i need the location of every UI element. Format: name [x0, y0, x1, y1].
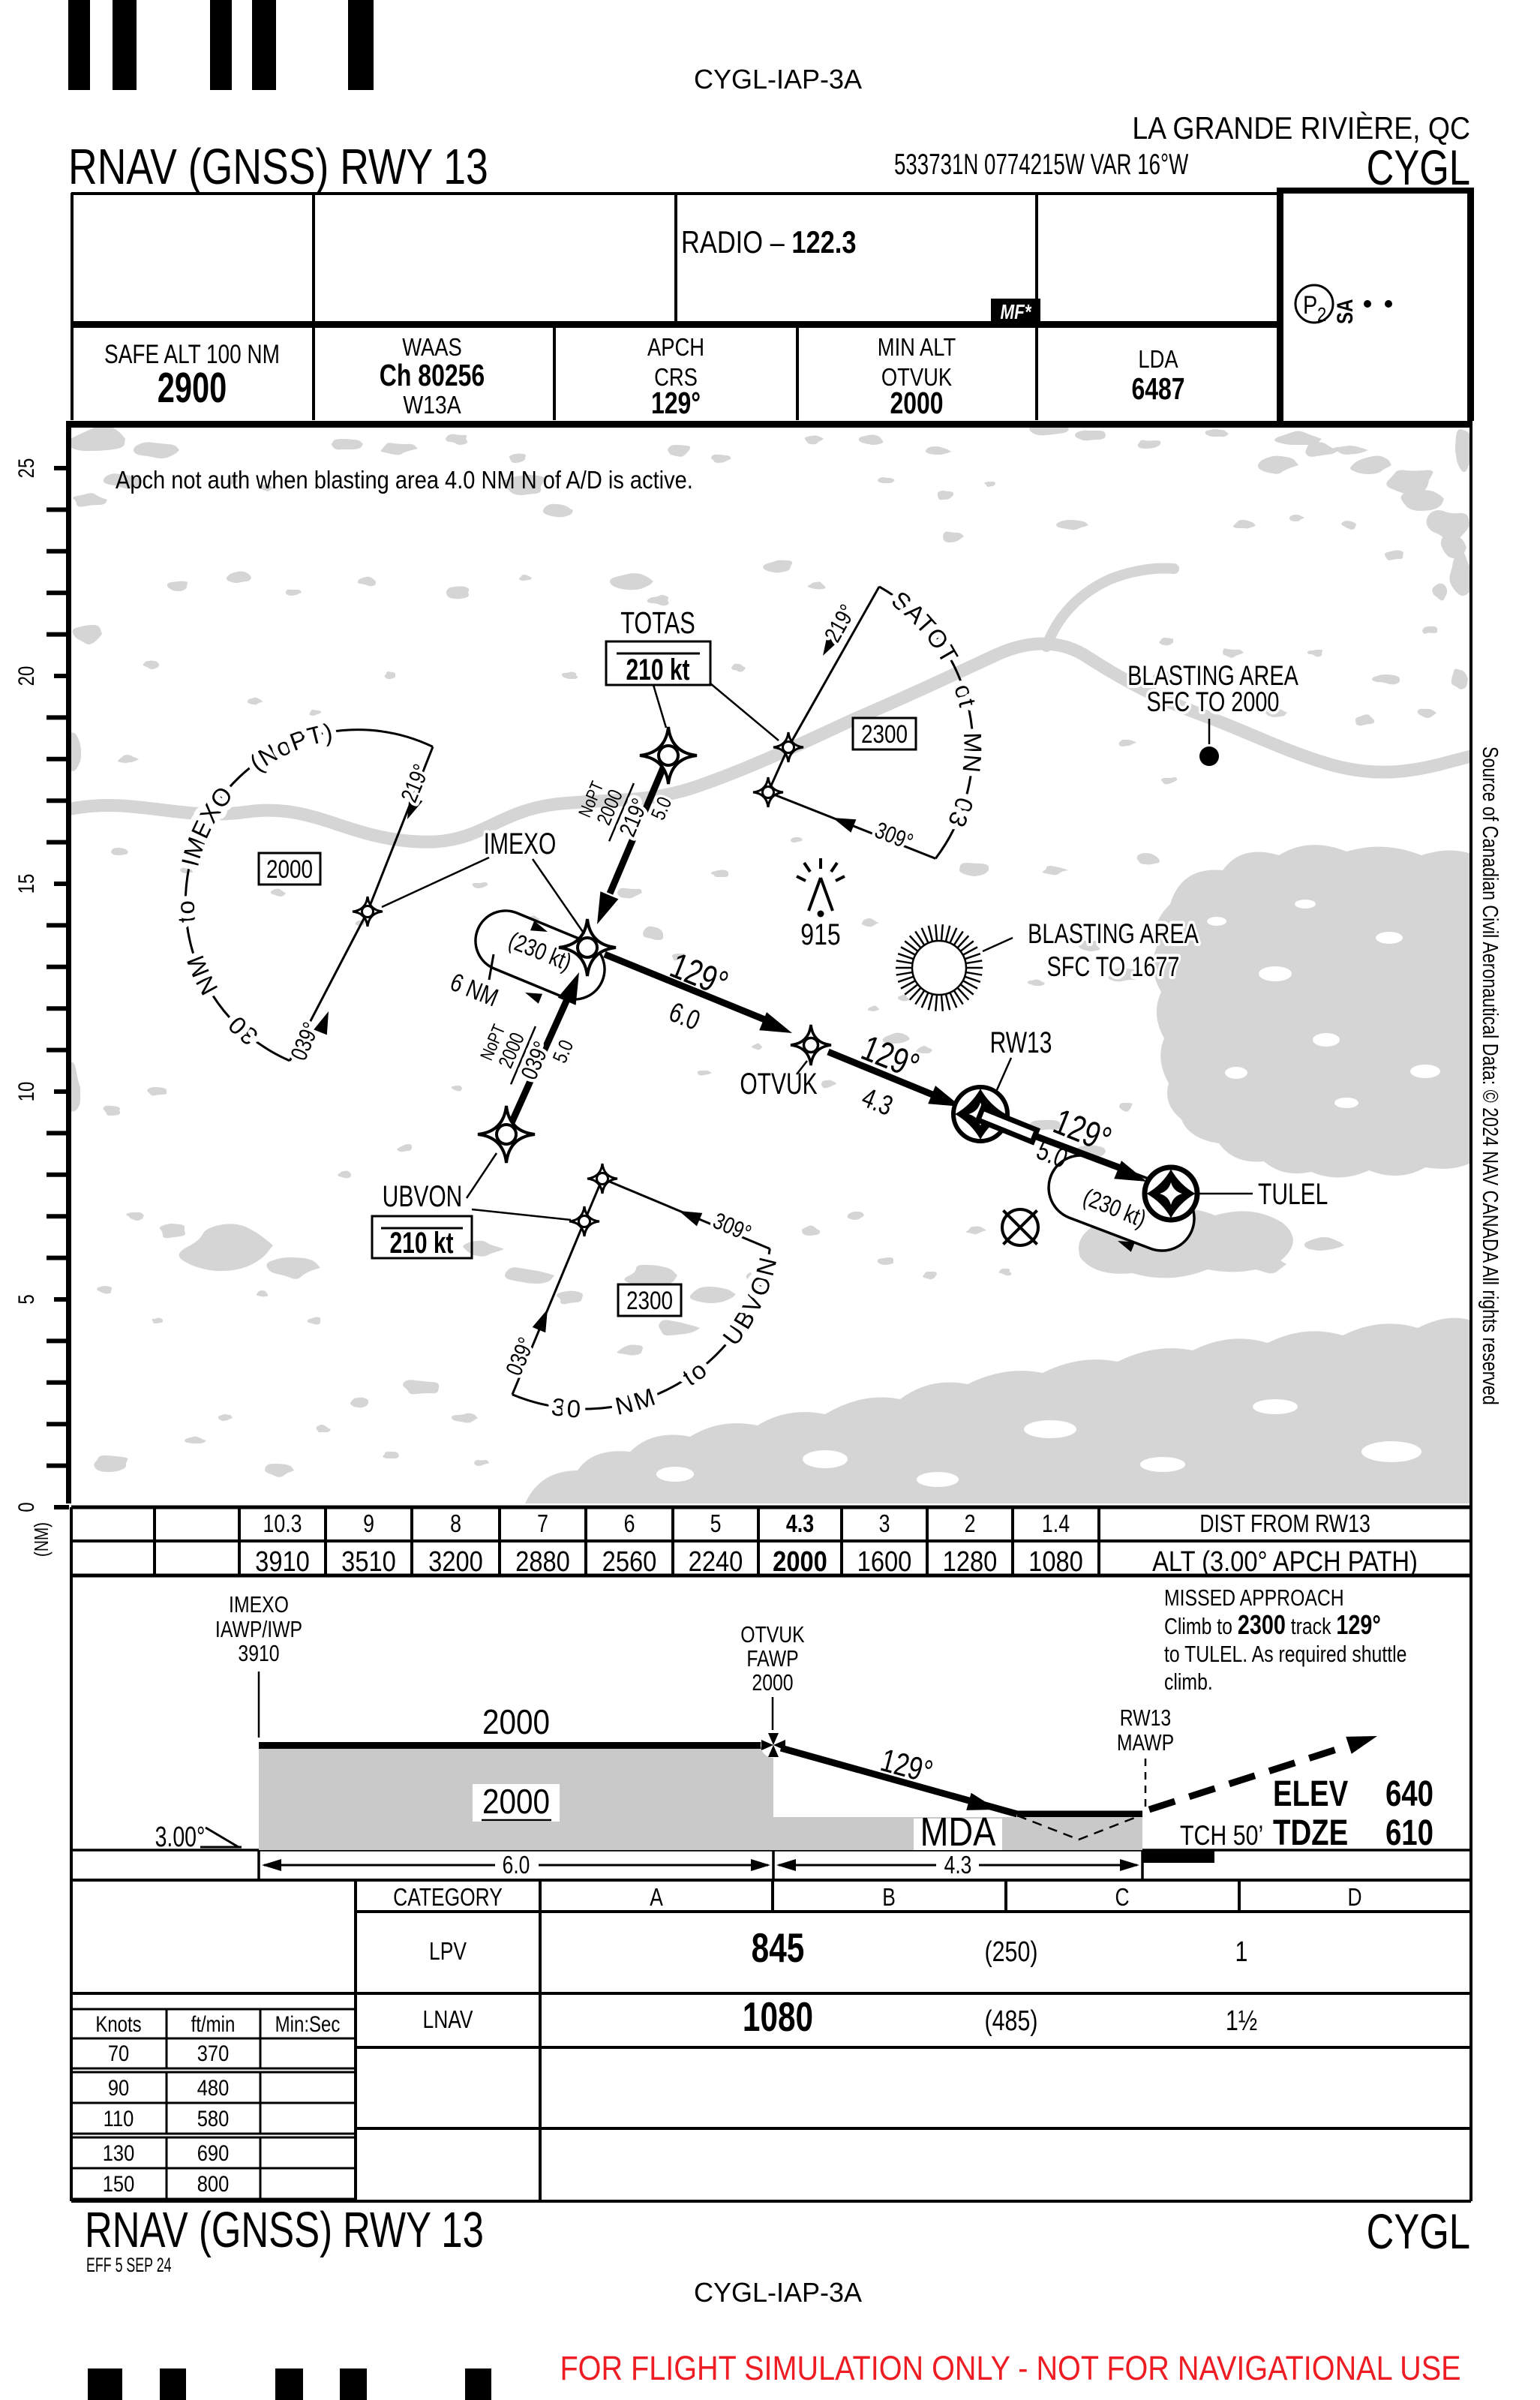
svg-text:W13A: W13A — [403, 391, 461, 419]
svg-text:915: 915 — [800, 918, 840, 951]
svg-text:7: 7 — [537, 1510, 548, 1537]
svg-text:90: 90 — [108, 2075, 129, 2100]
svg-text:370: 370 — [197, 2041, 230, 2065]
svg-text:800: 800 — [197, 2171, 230, 2196]
svg-text:RW13: RW13 — [990, 1026, 1052, 1059]
svg-text:129°: 129° — [651, 386, 701, 420]
svg-text:1.4: 1.4 — [1042, 1510, 1070, 1537]
svg-text:2000: 2000 — [482, 1704, 550, 1742]
svg-text:6487: 6487 — [1131, 371, 1184, 406]
svg-text:110: 110 — [104, 2106, 134, 2131]
svg-text:RNAV (GNSS) RWY 13: RNAV (GNSS) RWY 13 — [68, 138, 488, 194]
svg-text:10.3: 10.3 — [263, 1510, 302, 1537]
svg-text:130: 130 — [103, 2140, 135, 2165]
svg-text:LPV: LPV — [429, 1938, 467, 1965]
svg-text:5: 5 — [710, 1510, 722, 1537]
svg-text:CYGL-IAP-3A: CYGL-IAP-3A — [694, 2277, 862, 2308]
svg-text:8: 8 — [450, 1510, 461, 1537]
svg-text:5: 5 — [13, 1294, 38, 1304]
svg-text:1080: 1080 — [743, 1995, 813, 2041]
svg-text:CYGL: CYGL — [1367, 141, 1470, 196]
svg-text:20: 20 — [13, 666, 38, 686]
svg-text:Source of Canadian Civil Aeron: Source of Canadian Civil Aeronautical Da… — [1478, 746, 1502, 1405]
svg-text:IAWP/IWP: IAWP/IWP — [215, 1616, 302, 1642]
svg-text:1½: 1½ — [1226, 2005, 1257, 2037]
svg-text:1080: 1080 — [1028, 1545, 1083, 1578]
svg-text:OTVUK: OTVUK — [740, 1621, 805, 1647]
svg-text:480: 480 — [197, 2075, 230, 2100]
svg-text:ALT (3.00° APCH PATH): ALT (3.00° APCH PATH) — [1152, 1545, 1418, 1578]
svg-text:2560: 2560 — [602, 1545, 657, 1578]
svg-text:TOTAS: TOTAS — [620, 605, 695, 640]
svg-text:B: B — [882, 1884, 896, 1911]
svg-text:to TULEL. As required shuttle: to TULEL. As required shuttle — [1164, 1641, 1406, 1666]
svg-text:SFC TO 2000: SFC TO 2000 — [1147, 687, 1280, 718]
svg-text:210 kt: 210 kt — [389, 1227, 453, 1260]
svg-text:1280: 1280 — [943, 1545, 998, 1578]
svg-text:580: 580 — [197, 2106, 230, 2131]
svg-text:3.00°: 3.00° — [155, 1822, 206, 1853]
svg-text:RW13: RW13 — [1120, 1705, 1171, 1730]
svg-text:25: 25 — [13, 458, 38, 479]
svg-text:Knots: Knots — [95, 2011, 141, 2036]
svg-text:2000: 2000 — [752, 1669, 793, 1695]
svg-text:150: 150 — [103, 2171, 135, 2196]
svg-text:LNAV: LNAV — [423, 2006, 473, 2033]
svg-text:MAWP: MAWP — [1117, 1729, 1174, 1755]
svg-text:845: 845 — [752, 1926, 805, 1972]
svg-text:TCH 50’: TCH 50’ — [1180, 1820, 1263, 1852]
svg-text:3200: 3200 — [428, 1545, 483, 1578]
svg-text:ft/min: ft/min — [191, 2011, 236, 2036]
svg-text:IMEXO: IMEXO — [229, 1591, 289, 1617]
svg-text:MIN ALT: MIN ALT — [878, 335, 956, 362]
svg-text:10: 10 — [13, 1082, 38, 1102]
svg-text:4.3: 4.3 — [944, 1852, 972, 1879]
svg-text:690: 690 — [197, 2140, 230, 2165]
svg-text:533731N 0774215W VAR 16°W: 533731N 0774215W VAR 16°W — [894, 148, 1188, 181]
svg-text:0: 0 — [13, 1502, 38, 1512]
svg-text:APCH: APCH — [647, 335, 704, 362]
svg-text:OTVUK: OTVUK — [740, 1068, 818, 1101]
svg-text:SFC TO 1677: SFC TO 1677 — [1047, 952, 1180, 983]
svg-text:MF*: MF* — [1000, 301, 1031, 324]
svg-text:2: 2 — [1317, 304, 1326, 326]
svg-text:2000: 2000 — [890, 386, 943, 420]
svg-text:9: 9 — [363, 1510, 374, 1537]
svg-text:3: 3 — [879, 1510, 890, 1537]
svg-text:1: 1 — [1235, 1936, 1248, 1968]
svg-text:BLASTING AREA: BLASTING AREA — [1028, 919, 1199, 950]
svg-text:IMEXO: IMEXO — [484, 828, 557, 861]
svg-text:610: 610 — [1385, 1813, 1433, 1853]
svg-text:MISSED APPROACH: MISSED APPROACH — [1164, 1584, 1344, 1610]
svg-text:210 kt: 210 kt — [626, 653, 689, 686]
svg-text:6: 6 — [624, 1510, 635, 1537]
svg-text:(250): (250) — [985, 1936, 1038, 1968]
svg-text:DIST FROM RW13: DIST FROM RW13 — [1199, 1510, 1370, 1537]
svg-text:RNAV (GNSS) RWY 13: RNAV (GNSS) RWY 13 — [85, 2201, 484, 2257]
svg-text:LDA: LDA — [1138, 347, 1178, 374]
svg-text:3910: 3910 — [238, 1640, 279, 1666]
svg-text:EFF 5 SEP 24: EFF 5 SEP 24 — [86, 2253, 172, 2276]
svg-text:ELEV: ELEV — [1273, 1774, 1348, 1814]
svg-text:MDA: MDA — [920, 1809, 996, 1855]
svg-text:FAWP: FAWP — [746, 1645, 798, 1671]
svg-text:CYGL: CYGL — [1367, 2205, 1470, 2260]
svg-text:TULEL: TULEL — [1258, 1178, 1328, 1211]
svg-text:3510: 3510 — [341, 1545, 396, 1578]
svg-text:3910: 3910 — [255, 1545, 310, 1578]
svg-text:2300: 2300 — [861, 719, 908, 748]
svg-text:(485): (485) — [985, 2005, 1038, 2037]
svg-text:FOR FLIGHT SIMULATION ONLY - N: FOR FLIGHT SIMULATION ONLY - NOT FOR NAV… — [560, 2350, 1460, 2387]
svg-text:C: C — [1115, 1884, 1129, 1911]
svg-text:6.0: 6.0 — [503, 1852, 530, 1879]
svg-text:Climb to 2300 track 129°: Climb to 2300 track 129° — [1164, 1609, 1381, 1640]
svg-text:CYGL-IAP-3A: CYGL-IAP-3A — [694, 64, 862, 95]
svg-text:2300: 2300 — [626, 1286, 673, 1314]
svg-text:(NM): (NM) — [31, 1522, 53, 1557]
svg-text:4.3: 4.3 — [786, 1510, 814, 1537]
svg-text:2880: 2880 — [515, 1545, 570, 1578]
svg-text:UBVON: UBVON — [383, 1180, 463, 1213]
svg-text:climb.: climb. — [1164, 1669, 1213, 1694]
svg-text:Apch not auth when blasting ar: Apch not auth when blasting area 4.0 NM … — [116, 466, 693, 494]
svg-text:P: P — [1303, 290, 1317, 320]
svg-text:2000: 2000 — [266, 855, 313, 883]
svg-text:640: 640 — [1385, 1774, 1433, 1814]
svg-text:1600: 1600 — [857, 1545, 912, 1578]
svg-text:SA: SA — [1331, 299, 1357, 324]
svg-text:TDZE: TDZE — [1273, 1813, 1348, 1853]
svg-text:Min:Sec: Min:Sec — [275, 2011, 341, 2036]
svg-text:2: 2 — [965, 1510, 976, 1537]
svg-text:CATEGORY: CATEGORY — [393, 1884, 503, 1911]
svg-text:70: 70 — [108, 2041, 129, 2065]
svg-text:RADIO – 122.3: RADIO – 122.3 — [681, 225, 856, 260]
svg-text:2900: 2900 — [158, 364, 227, 412]
svg-text:A: A — [650, 1884, 663, 1911]
svg-text:15: 15 — [13, 874, 38, 894]
svg-text:Ch 80256: Ch 80256 — [380, 358, 485, 392]
svg-text:2000: 2000 — [482, 1783, 550, 1822]
svg-text:2240: 2240 — [689, 1545, 743, 1578]
svg-text:2000: 2000 — [773, 1545, 827, 1578]
svg-text:D: D — [1347, 1884, 1361, 1911]
